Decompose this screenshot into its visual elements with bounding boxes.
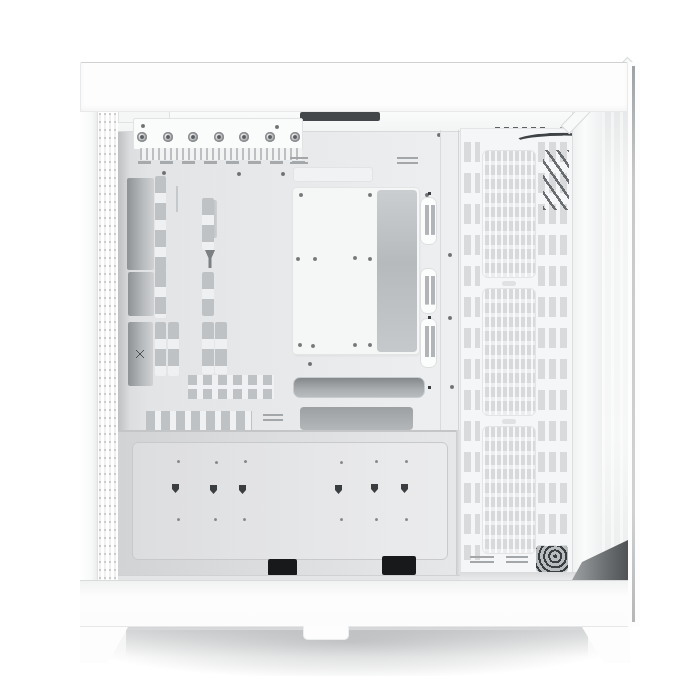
stamped-cross-mark <box>136 350 144 358</box>
fan-mesh-zone <box>482 288 536 416</box>
cable-opening <box>293 377 425 398</box>
pc-case-product-photo <box>0 0 700 700</box>
glass-edge-line <box>632 66 635 622</box>
thumbscrew-icon <box>163 132 173 142</box>
cable-opening <box>300 407 413 430</box>
horizontal-ladder-cutouts <box>188 375 274 399</box>
cable-tie-ladder <box>168 322 179 376</box>
tray-slot-pair <box>397 157 418 164</box>
thumbscrew-icon <box>137 132 147 142</box>
top-fan-silhouette <box>300 112 380 121</box>
bottom-slot-pair <box>506 556 528 563</box>
cable-tie-ladder <box>202 198 214 250</box>
panel-seam <box>440 130 441 440</box>
top-panel <box>80 62 628 112</box>
fan-mesh-zone <box>482 150 536 278</box>
fan-panel-vent-column <box>464 142 480 560</box>
front-glass-edge-strip <box>628 62 640 627</box>
mesh-bridge-slot <box>502 281 516 286</box>
thumbscrew-icon <box>214 132 224 142</box>
plate-metal-strip <box>377 190 417 352</box>
case-underside-shadow <box>126 627 588 657</box>
fan-mesh-zone <box>482 426 536 554</box>
cable-grommet-slots <box>420 318 437 368</box>
shroud-step-edge <box>456 430 460 575</box>
cable-grommet-slots <box>420 197 437 245</box>
cable-tie-ladder <box>155 322 166 376</box>
cable-tie-ladder <box>202 272 214 316</box>
cable-tie-ladder <box>215 322 227 374</box>
thumbscrew-icon <box>188 132 198 142</box>
tray-slot-pair <box>290 157 308 164</box>
thumbscrew-row <box>137 131 300 143</box>
cables-behind-mesh <box>543 150 569 210</box>
thumbscrew-icon <box>265 132 275 142</box>
cable-tie-ladder <box>202 322 214 374</box>
front-frame-pillar <box>572 110 602 580</box>
tray-dash-vents <box>138 161 306 164</box>
bottom-slot-pair <box>470 556 494 563</box>
thumbscrew-icon <box>290 132 300 142</box>
rubber-grommet <box>382 556 416 575</box>
rear-frame-column <box>80 112 98 583</box>
rib-screws <box>428 192 431 195</box>
mesh-bridge-slot <box>502 419 516 424</box>
coiled-cable <box>536 546 568 572</box>
horizontal-ladder-cutouts <box>146 411 252 431</box>
bracket-mark <box>176 186 178 212</box>
rear-perforated-panel <box>99 113 118 581</box>
cable-grommet-slots <box>420 268 437 314</box>
standoff-holes <box>299 193 303 197</box>
thumbscrew-icon <box>239 132 249 142</box>
expansion-vent-slats <box>140 148 302 160</box>
cable-recess <box>127 178 154 270</box>
cable-recess <box>128 272 154 316</box>
rubber-grommet <box>268 559 297 576</box>
base-center-tab <box>303 626 349 640</box>
tray-slot-pair <box>263 414 283 421</box>
front-glass-panel <box>602 110 628 580</box>
cable-tie-ladder <box>155 270 166 318</box>
tray-screw-holes <box>141 124 145 128</box>
case-base <box>80 580 640 627</box>
mount-holes <box>177 460 180 463</box>
stamped-outline <box>293 167 373 182</box>
cable-tie-ladder <box>155 176 166 272</box>
